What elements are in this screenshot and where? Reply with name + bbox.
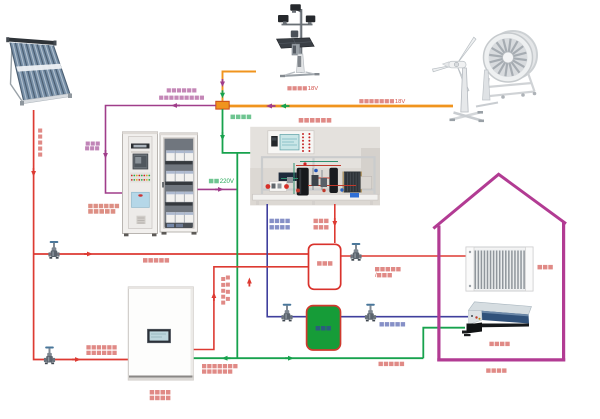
svg-text:18V: 18V	[395, 99, 405, 105]
svg-text:18V: 18V	[308, 86, 318, 92]
svg-text:220V: 220V	[220, 178, 235, 185]
